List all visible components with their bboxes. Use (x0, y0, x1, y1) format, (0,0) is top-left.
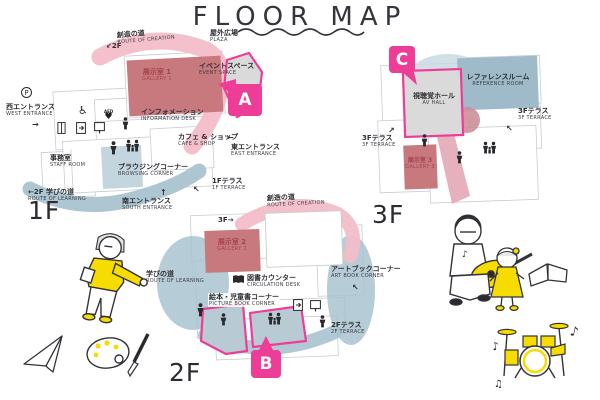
marker-a-label: A (238, 90, 251, 110)
west-entrance-arrow: → (32, 120, 39, 129)
restroom-icon-1f-b (109, 141, 118, 155)
child-illustration (490, 248, 524, 310)
label-staff-room: 事務室STAFF ROOM (50, 154, 85, 168)
restroom-icon-3f-b (455, 151, 464, 164)
floor-label-2f: 2F (169, 358, 201, 387)
label-route-of-learning-2f: 学びの道ROUTE OF LEARNING (146, 270, 204, 284)
drum-kit-icon (498, 323, 568, 378)
floor-label-1f: 1F (28, 196, 60, 225)
music-note-icon: ♫ (494, 379, 503, 390)
terrace-1f-arrow: ↖ (193, 185, 200, 194)
label-route-of-creation-2f: 創造の道ROUTE OF CREATION (267, 191, 325, 208)
floor-label-3f: 3F (372, 200, 404, 229)
label-south-entrance: 南エントランスSOUTH ENTRANCE (122, 197, 172, 211)
label-west-entrance: 西エントランスWEST ENTRANCE (6, 103, 55, 117)
label-av-hall: 視聴覚ホールAV HALL (408, 92, 460, 106)
circulation-book-icon (232, 274, 245, 286)
south-entrance-arrow: ↑ (160, 188, 167, 197)
restroom-icon-3f-a (420, 134, 429, 147)
aed-icon: AED♥ (104, 110, 113, 121)
label-art-book-corner: アートブックコーナーART BOOK CORNER (331, 265, 401, 279)
family-restroom-icon-3f (482, 141, 498, 156)
label-gallery3: 展示室 3GALLERY 3 (399, 157, 441, 170)
label-stairs-to-2f: ↙2F (106, 42, 122, 50)
label-terrace-3f-left: 3Fテラス3F TERRACE (362, 134, 396, 148)
label-circulation-desk: 図書カウンターCIRCULATION DESK (247, 274, 300, 288)
label-reference-room: レファレンスルームREFERENCE ROOM (466, 73, 530, 87)
label-terrace-3f-right: 3Fテラス3F TERRACE (518, 107, 552, 121)
door-icon (76, 122, 86, 134)
label-plaza: 屋外広場PLAZA (210, 29, 238, 43)
art-book-corner-arrow: ↖ (352, 283, 359, 292)
label-terrace-2f: 2Fテラス2F TERRACE (331, 321, 365, 335)
label-picture-book-corner: 絵本・児童書コーナーPICTURE BOOK CORNER (208, 293, 280, 307)
label-terrace-1f: 1Fテラス1F TERRACE (212, 177, 246, 191)
label-event-space: イベントスペースEVENT SPACE (199, 62, 254, 76)
elevator-icon (57, 122, 66, 134)
paintbrush-icon (128, 334, 148, 376)
open-book-icon (529, 264, 567, 286)
restroom-icon-1f-a (121, 117, 130, 130)
marker-a[interactable]: A (228, 84, 262, 116)
picture-book-corner-shape-left (201, 304, 247, 354)
terrace-3f-right-arrow: ↖ (506, 124, 513, 133)
family-restroom-icon-1f (125, 139, 141, 154)
marker-c[interactable]: C (389, 46, 415, 73)
info-kiosk-icon (94, 122, 105, 134)
paper-plane-icon (24, 336, 62, 372)
info-kiosk-icon-2f (310, 300, 321, 312)
east-entrance-arrow: ← (227, 133, 234, 142)
palette-icon (85, 335, 131, 371)
family-restroom-icon-2f (267, 312, 283, 327)
label-gallery2: 展示室 2GALLERY 2 (208, 238, 256, 252)
floor-map-page: FLOOR MAP A B C 創造の道ROUTE OF CREATION ↙2… (0, 0, 600, 400)
parking-icon: P (21, 87, 32, 98)
title-squiggle (237, 28, 365, 36)
label-gallery1: 展示室 1GALLERY 1 (133, 68, 181, 82)
marker-b-label: B (260, 354, 273, 374)
marker-c-label: C (396, 50, 408, 70)
music-note-icon: ♪ (462, 250, 468, 260)
restroom-icon-2f-c (318, 315, 327, 328)
label-east-entrance: 東エントランスEAST ENTRANCE (231, 143, 280, 157)
f2-inner-room (265, 211, 343, 268)
label-stairs-to-3f: 3F→ (218, 216, 234, 224)
pointing-person-illustration (76, 231, 152, 326)
door-icon-2f (293, 299, 303, 311)
label-information-desk: インフォメーションINFORMATION DESK (141, 108, 204, 122)
restroom-icon-2f-b (219, 313, 228, 326)
wheelchair-icon: ♿ (78, 104, 88, 117)
label-browsing-corner: ブラウジングコーナーBROWSING CORNER (118, 163, 188, 177)
restroom-icon-2f-a (196, 303, 205, 317)
marker-b[interactable]: B (251, 350, 281, 378)
